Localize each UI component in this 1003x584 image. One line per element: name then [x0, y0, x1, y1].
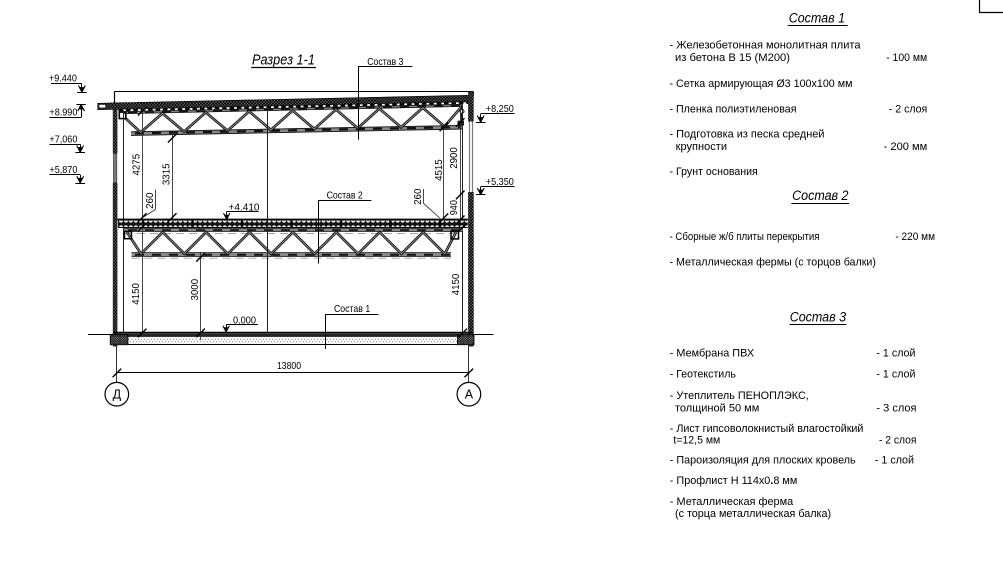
svg-text:- 200 мм: - 200 мм [884, 141, 928, 153]
svg-text:3315: 3315 [161, 163, 172, 185]
svg-text:- Металлическая ферма: - Металлическая ферма [670, 496, 794, 508]
svg-text:- 1 слой: - 1 слой [875, 454, 914, 466]
svg-text:Состав 2: Состав 2 [792, 188, 848, 204]
svg-text:+9.440: +9.440 [49, 73, 77, 84]
svg-text:4275: 4275 [131, 153, 142, 175]
svg-text:- Пароизоляция для плоских кро: - Пароизоляция для плоских кровель [670, 454, 856, 466]
svg-text:- 2 слоя: - 2 слоя [879, 435, 917, 447]
svg-text:- 100 мм: - 100 мм [886, 52, 927, 64]
svg-text:13800: 13800 [277, 361, 301, 372]
svg-text:- Профлист Н 114х0.8 мм: - Профлист Н 114х0.8 мм [670, 475, 798, 487]
svg-text:+8.990: +8.990 [49, 108, 77, 119]
svg-text:толщиной 50 мм: толщиной 50 мм [675, 402, 759, 414]
svg-text:4150: 4150 [451, 273, 462, 295]
svg-text:- Лист гипсоволокнистый влагос: - Лист гипсоволокнистый влагостойкий [670, 423, 864, 435]
svg-text:3000: 3000 [190, 278, 201, 300]
svg-text:А: А [465, 388, 474, 402]
svg-text:- Сетка армирующая Ø3 100х100: - Сетка армирующая Ø3 100х100 мм [670, 78, 853, 90]
svg-text:- Геотекстиль: - Геотекстиль [670, 369, 737, 381]
svg-text:Состав 3: Состав 3 [790, 309, 846, 325]
svg-text:- Сборные ж/б плиты перекрытия: - Сборные ж/б плиты перекрытия [670, 231, 820, 243]
svg-text:2900: 2900 [449, 147, 460, 169]
svg-text:- 1 слой: - 1 слой [876, 369, 915, 381]
svg-text:- 1 слой: - 1 слой [876, 348, 915, 360]
svg-text:Разрез 1-1: Разрез 1-1 [252, 51, 315, 68]
svg-text:t=12,5 мм: t=12,5 мм [673, 435, 720, 447]
svg-text:4150: 4150 [131, 283, 142, 305]
svg-text:- 2 слоя: - 2 слоя [889, 104, 928, 116]
svg-text:- Подготовка из песка средней: - Подготовка из песка средней [670, 128, 825, 140]
svg-text:260: 260 [413, 188, 424, 205]
svg-text:- Металлическая фермы (с торцо: - Металлическая фермы (с торцов балки) [670, 257, 876, 269]
svg-text:- Мембрана ПВХ: - Мембрана ПВХ [670, 348, 754, 360]
svg-text:Состав 1: Состав 1 [334, 304, 370, 315]
svg-text:- Утеплитель ПЕНОПЛЭКС,: - Утеплитель ПЕНОПЛЭКС, [670, 390, 809, 402]
svg-text:4515: 4515 [434, 159, 445, 181]
svg-text:из бетона В 15 (М200): из бетона В 15 (М200) [675, 52, 790, 64]
svg-text:- Железобетонная монолитная п: - Железобетонная монолитная плита [670, 39, 861, 51]
svg-text:(с торца металлическая балка): (с торца металлическая балка) [675, 508, 831, 520]
svg-text:260: 260 [145, 192, 156, 209]
svg-text:+7,060: +7,060 [49, 134, 77, 145]
svg-text:Д: Д [113, 388, 122, 402]
svg-text:крупности: крупности [676, 141, 727, 153]
svg-text:Состав 2: Состав 2 [327, 190, 363, 201]
svg-text:- 3 слоя: - 3 слоя [876, 402, 916, 414]
svg-text:940: 940 [449, 200, 460, 216]
svg-text:Состав 1: Состав 1 [789, 10, 845, 26]
svg-text:- Грунт основания: - Грунт основания [670, 166, 758, 178]
svg-text:- Пленка полиэтиленовая: - Пленка полиэтиленовая [670, 104, 797, 116]
svg-text:- 220 мм: - 220 мм [895, 231, 935, 243]
